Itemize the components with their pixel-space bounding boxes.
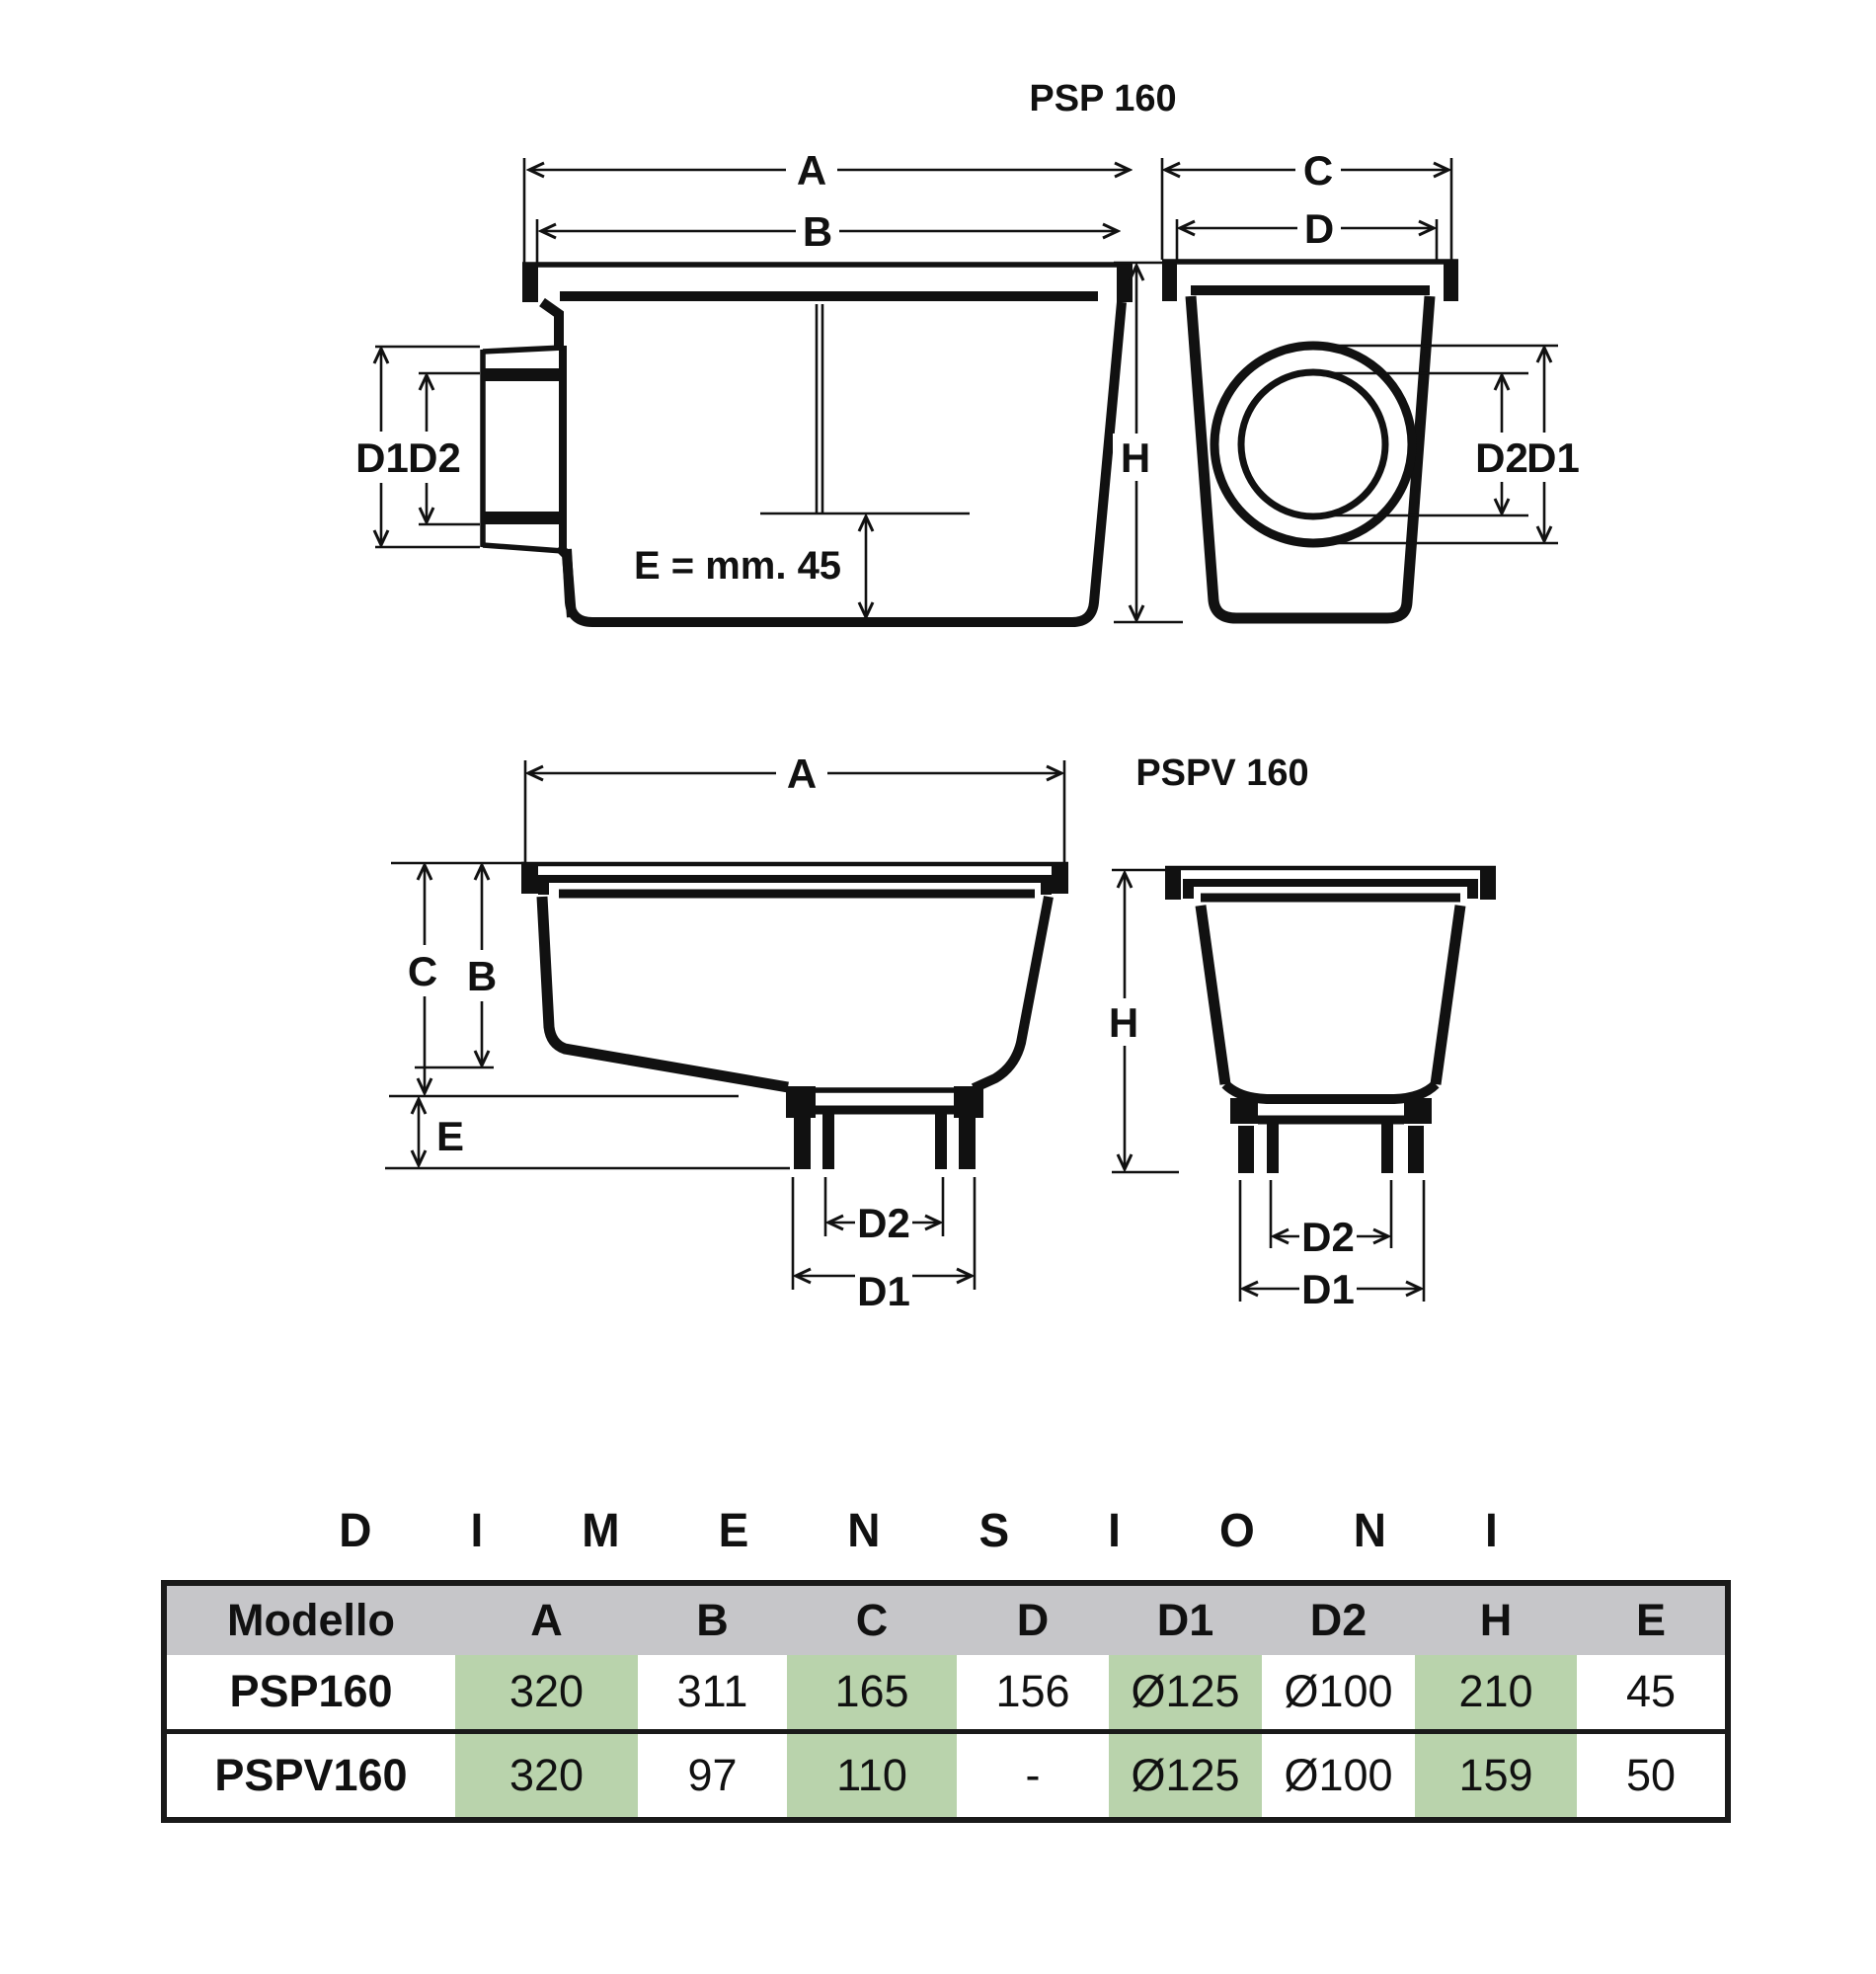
tank-right-wall bbox=[1436, 906, 1460, 1084]
label-A: A bbox=[797, 147, 826, 194]
pspv-title: PSPV 160 bbox=[1135, 752, 1308, 794]
label-D2: D2 bbox=[857, 1200, 910, 1246]
label-D1: D1 bbox=[1301, 1266, 1355, 1312]
label-B: B bbox=[803, 208, 832, 255]
value-d: 156 bbox=[957, 1655, 1109, 1731]
value-e: 45 bbox=[1577, 1655, 1728, 1731]
table-row: PSP160 320 311 165 156 Ø125 Ø100 210 45 bbox=[164, 1655, 1728, 1731]
technical-sheet-page: PSP 160 PSPV 160 bbox=[0, 0, 1876, 1974]
value-d1: Ø125 bbox=[1109, 1731, 1262, 1820]
label-H: H bbox=[1121, 434, 1150, 481]
value-a: 320 bbox=[455, 1655, 638, 1731]
outlet-collar bbox=[1404, 1098, 1432, 1124]
value-d: - bbox=[957, 1731, 1109, 1820]
model-name: PSPV160 bbox=[164, 1731, 455, 1820]
flange-cap bbox=[1444, 260, 1458, 301]
label-C: C bbox=[408, 948, 437, 994]
outlet-wall bbox=[1381, 1122, 1393, 1173]
pspv-front-view: H bbox=[1100, 866, 1496, 1312]
label-D2: D2 bbox=[408, 434, 461, 481]
flange-cap bbox=[1480, 866, 1496, 900]
flange-step bbox=[1183, 883, 1194, 899]
value-d1: Ø125 bbox=[1109, 1655, 1262, 1731]
tank-bottom bbox=[1225, 1084, 1436, 1099]
table-title: DIMENSIONI bbox=[0, 1502, 1876, 1558]
pipe-band bbox=[481, 368, 563, 381]
flange-cap bbox=[521, 862, 538, 894]
technical-drawings: PSP 160 PSPV 160 bbox=[0, 0, 1876, 1452]
value-d2: Ø100 bbox=[1262, 1731, 1415, 1820]
col-header-d2: D2 bbox=[1262, 1583, 1415, 1655]
outlet-wall bbox=[959, 1118, 976, 1169]
tank-left-wall bbox=[542, 897, 788, 1087]
label-B: B bbox=[467, 953, 497, 999]
flange-cap bbox=[522, 263, 538, 302]
label-D2: D2 bbox=[1301, 1214, 1355, 1260]
col-header-b: B bbox=[638, 1583, 787, 1655]
label-D1: D1 bbox=[857, 1268, 910, 1314]
label-D2: D2 bbox=[1475, 434, 1528, 481]
col-header-modello: Modello bbox=[164, 1583, 455, 1655]
outlet-collar bbox=[954, 1086, 983, 1118]
flange-step bbox=[1467, 883, 1478, 899]
tank-right-wall bbox=[974, 897, 1049, 1088]
col-header-e: E bbox=[1577, 1583, 1728, 1655]
table-row: PSPV160 320 97 110 - Ø125 Ø100 159 50 bbox=[164, 1731, 1728, 1820]
col-header-a: A bbox=[455, 1583, 638, 1655]
outlet-collar bbox=[1230, 1098, 1258, 1124]
outlet-wall bbox=[1408, 1126, 1424, 1173]
value-d2: Ø100 bbox=[1262, 1655, 1415, 1731]
outlet-wall bbox=[1267, 1122, 1279, 1173]
model-name: PSP160 bbox=[164, 1655, 455, 1731]
value-c: 110 bbox=[787, 1731, 957, 1820]
outlet-wall bbox=[794, 1118, 811, 1169]
value-h: 159 bbox=[1415, 1731, 1577, 1820]
flange-step bbox=[1041, 879, 1052, 895]
psp-front-view: C D D2 D1 bbox=[1162, 147, 1580, 618]
flange-cap bbox=[1117, 263, 1133, 302]
label-A: A bbox=[787, 750, 817, 797]
col-header-d1: D1 bbox=[1109, 1583, 1262, 1655]
label-D: D bbox=[1304, 205, 1334, 252]
wall-step bbox=[542, 302, 559, 347]
flange-cap bbox=[1165, 866, 1181, 900]
psp-title: PSP 160 bbox=[1029, 78, 1176, 119]
dimension-table-wrapper: Modello A B C D D1 D2 H E PSP160 320 311… bbox=[161, 1580, 1731, 1823]
psp-side-view: E = mm. 45 A B D1 D2 bbox=[352, 147, 1133, 622]
col-header-d: D bbox=[957, 1583, 1109, 1655]
value-b: 311 bbox=[638, 1655, 787, 1731]
flange-cap bbox=[1052, 862, 1068, 894]
outlet-wall bbox=[822, 1113, 834, 1169]
value-c: 165 bbox=[787, 1655, 957, 1731]
col-header-h: H bbox=[1415, 1583, 1577, 1655]
label-H: H bbox=[1109, 999, 1138, 1046]
pipe-bottom bbox=[483, 545, 563, 551]
outlet-collar bbox=[786, 1086, 816, 1118]
value-h: 210 bbox=[1415, 1655, 1577, 1731]
value-b: 97 bbox=[638, 1731, 787, 1820]
outlet-circle-inner bbox=[1241, 372, 1385, 516]
pipe-top bbox=[483, 348, 563, 352]
flange-cap bbox=[1162, 260, 1177, 301]
tank-left-wall bbox=[1201, 906, 1225, 1084]
outlet-wall bbox=[1238, 1126, 1254, 1173]
value-e: 50 bbox=[1577, 1731, 1728, 1820]
table-header-row: Modello A B C D D1 D2 H E bbox=[164, 1583, 1728, 1655]
dimension-table: Modello A B C D D1 D2 H E PSP160 320 311… bbox=[161, 1580, 1731, 1823]
label-E: E bbox=[436, 1113, 464, 1159]
pipe-band bbox=[481, 512, 563, 524]
flange-step bbox=[538, 879, 549, 895]
col-header-c: C bbox=[787, 1583, 957, 1655]
pspv-side-view: A C B E D2 D1 bbox=[385, 750, 1068, 1314]
label-D1: D1 bbox=[355, 434, 409, 481]
value-a: 320 bbox=[455, 1731, 638, 1820]
outlet-wall bbox=[935, 1113, 947, 1169]
label-D1: D1 bbox=[1526, 434, 1580, 481]
e-note: E = mm. 45 bbox=[634, 544, 841, 588]
label-C: C bbox=[1303, 147, 1333, 194]
